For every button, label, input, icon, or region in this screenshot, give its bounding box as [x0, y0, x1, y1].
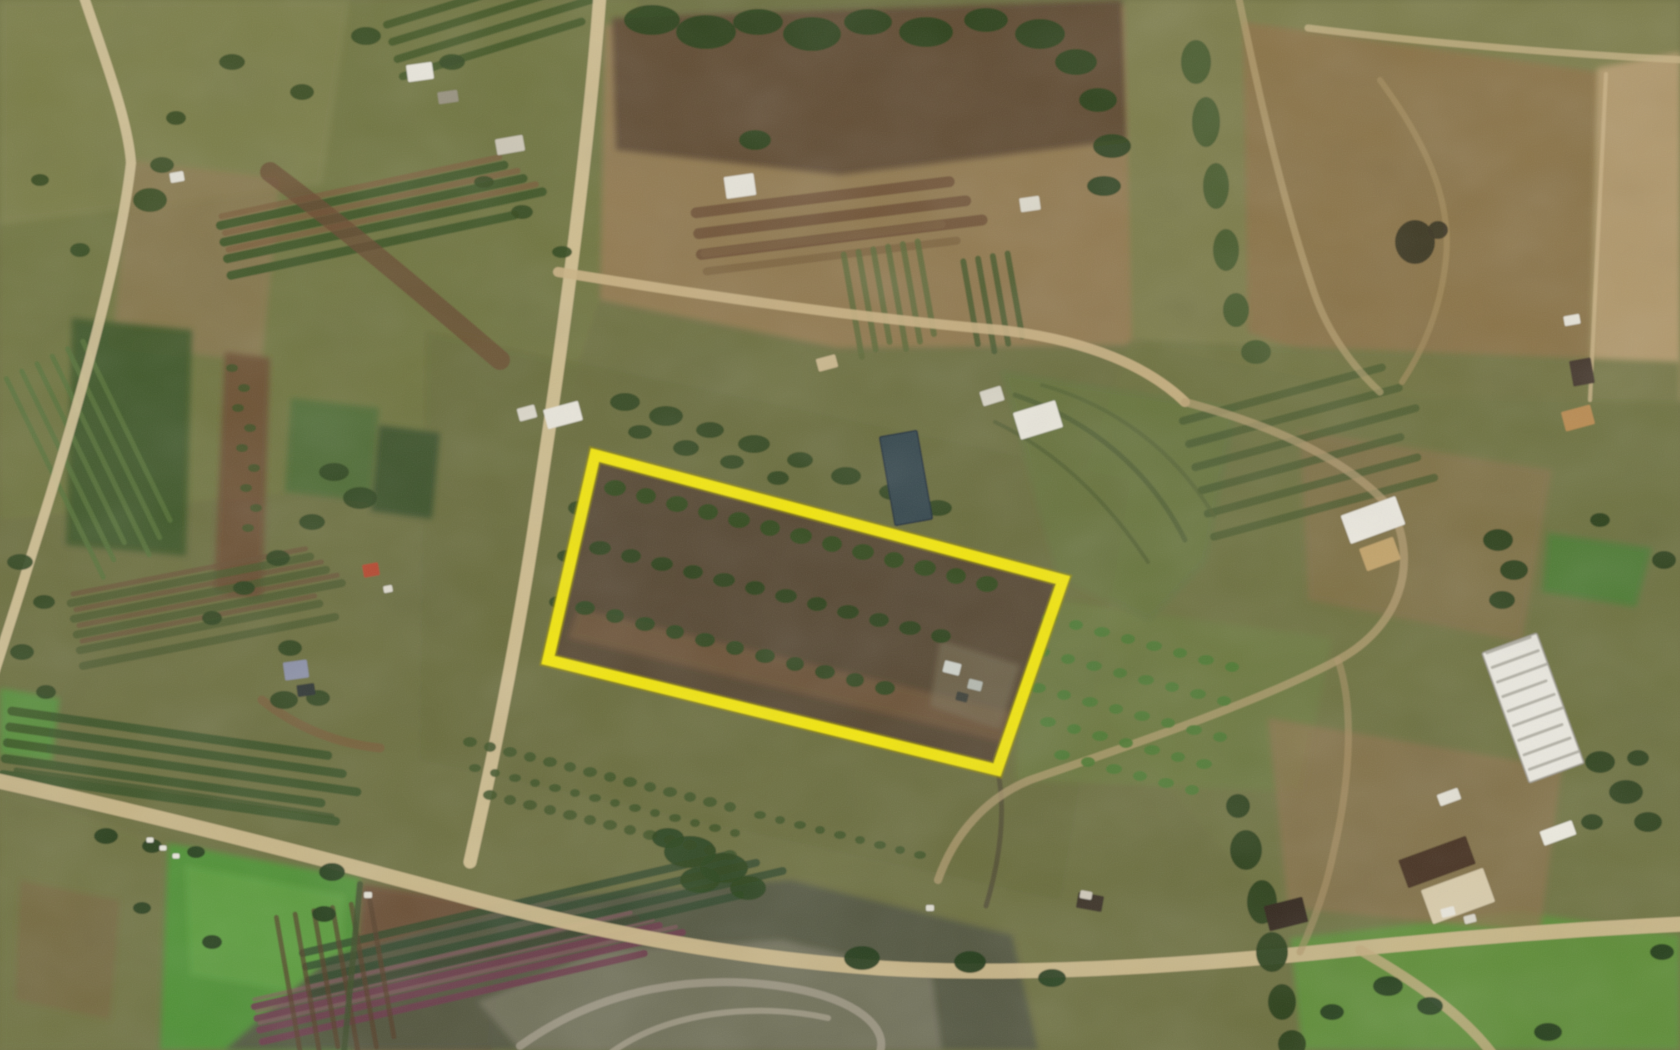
trees-bottom-scatter-blob — [1417, 997, 1443, 1015]
trees-leftmid-scatter-blob — [299, 514, 325, 530]
orchard-dots-below-parcel-blob — [855, 836, 865, 844]
trees-topleft-scatter-blob — [31, 174, 49, 186]
pond-scrub-field-blob — [1428, 221, 1448, 239]
trees-homestead-blob — [1652, 551, 1676, 569]
parcel-tree-row-2-blob — [775, 589, 797, 603]
bushfield-dots-right-blob — [1119, 738, 1133, 748]
white-dot-row-b — [160, 846, 167, 851]
orchard-dots-below-parcel-blob — [629, 804, 641, 812]
parcel-tree-row-1-blob — [884, 552, 904, 568]
trees-leftmid-scatter-blob — [266, 550, 290, 566]
orchard-dots-below-parcel-blob — [589, 794, 601, 802]
parcel-tree-row-3-blob — [635, 617, 655, 631]
orchard-dots-below-parcel-blob — [504, 795, 516, 805]
trees-top-edge-blob — [1087, 176, 1121, 196]
bushfield-dots-right-blob — [1054, 750, 1070, 760]
bush-mass-bottomcenter-blob — [730, 876, 766, 900]
parcel-tree-row-3-blob — [726, 641, 744, 655]
bushes-above-parcel-blob — [673, 440, 699, 456]
parcel-tree-row-2-blob — [869, 613, 889, 627]
trees-bottom-scatter-blob — [954, 951, 986, 973]
trees-bottom-scatter-blob — [1534, 1023, 1562, 1041]
orchard-dots-below-parcel-blob — [564, 762, 576, 772]
plot-darkgreen-mid — [371, 425, 440, 519]
orchard-dots-below-parcel-blob — [604, 772, 616, 782]
bushfield-dots-right-blob — [1086, 661, 1102, 671]
orchard-dots-below-parcel-blob — [684, 792, 696, 802]
trees-bottom-scatter-blob — [312, 906, 336, 922]
trees-topleft-scatter-blob — [166, 111, 186, 125]
white-spec-field-roof — [364, 892, 372, 898]
orchard-dots-below-parcel-blob — [623, 777, 637, 787]
trees-leftmid-scatter-blob — [319, 463, 349, 481]
parcel-tree-row-2-blob — [651, 557, 673, 571]
white-spec-field — [364, 892, 372, 898]
bushfield-dots-right-blob — [1138, 675, 1154, 685]
bushfield-dots-right-blob — [1185, 785, 1199, 795]
parcel-tree-row-2-blob — [931, 629, 951, 643]
orchard-dots-below-parcel-blob — [724, 802, 736, 812]
trees-leftmid-scatter-blob — [202, 611, 222, 625]
trees-bottom-scatter-blob — [1373, 976, 1403, 996]
trees-topleft-scatter-blob — [439, 54, 465, 70]
trees-topleft-scatter-blob — [552, 246, 572, 258]
white-shed-topcenter-roof — [724, 173, 757, 199]
orchard-dots-below-parcel-blob — [775, 816, 785, 824]
trees-homestead-blob — [1581, 814, 1603, 830]
trees-topright-column-blob — [1213, 229, 1239, 271]
orchard-dots-below-parcel-blob — [524, 752, 536, 762]
hedge-dots-brown-strip-blob — [238, 384, 250, 392]
bushfield-dots-right-blob — [1057, 690, 1071, 700]
plot-green-mid — [285, 398, 379, 502]
bushfield-dots-right-blob — [1144, 745, 1160, 755]
bushfield-dots-right-blob — [1171, 752, 1185, 762]
scene-layers — [0, 0, 1680, 1050]
orchard-dots-below-parcel-blob — [815, 826, 825, 834]
trees-topleft-scatter-blob — [474, 176, 494, 188]
bushfield-dots-right-blob — [1133, 771, 1147, 781]
blue-hut-annex-roof — [296, 683, 315, 697]
trees-bottom-scatter-blob — [1650, 944, 1674, 960]
white-dot-row-a-roof — [147, 838, 154, 843]
orchard-dots-below-parcel-blob — [703, 797, 717, 807]
orchard-dots-below-parcel-blob — [469, 764, 481, 772]
trees-bottom-scatter-blob — [202, 935, 222, 949]
trees-topleft-scatter-blob — [219, 54, 245, 70]
trees-leftmid-scatter-blob — [278, 640, 302, 656]
bushfield-dots-right-blob — [1225, 662, 1239, 672]
tree-column-bottomright-blob — [1256, 932, 1288, 972]
orchard-dots-below-parcel-blob — [463, 737, 477, 747]
bushfield-dots-right-blob — [1106, 764, 1122, 774]
bushfield-dots-right-blob — [1109, 704, 1123, 714]
orchard-dots-below-parcel-blob — [650, 809, 660, 817]
white-house-topleft — [406, 62, 434, 82]
orchard-dots-below-parcel-blob — [730, 829, 740, 837]
bushes-above-parcel-blob — [738, 435, 770, 453]
bushfield-dots-right-blob — [1213, 732, 1227, 742]
parcel-tree-row-3-blob — [666, 625, 684, 639]
parcel-tree-row-2-blob — [713, 573, 735, 587]
parcel-tree-row-3-blob — [575, 601, 595, 615]
bushes-above-parcel-blob — [831, 467, 861, 485]
orchard-dots-below-parcel-blob — [754, 811, 766, 819]
trees-bottom-scatter-blob — [1038, 969, 1066, 987]
trees-topright-column-blob — [1241, 340, 1271, 364]
hedge-dots-brown-strip-blob — [248, 464, 260, 472]
blue-hut — [283, 659, 309, 680]
orchard-dots-below-parcel-blob — [584, 815, 596, 825]
trees-bottom-scatter-blob — [133, 902, 151, 914]
red-roof-hut-roof — [362, 562, 380, 578]
trees-bottom-scatter-blob — [1320, 1004, 1344, 1020]
trees-leftmid-scatter-blob — [343, 487, 377, 509]
white-dot-bottom — [926, 905, 934, 911]
trees-top-edge-blob — [1055, 49, 1097, 75]
parcel-tree-row-2-blob — [745, 581, 765, 595]
orchard-dots-below-parcel-blob — [583, 767, 597, 777]
bushfield-dots-right-blob — [1067, 724, 1081, 734]
parcel-tree-row-1-blob — [636, 488, 656, 504]
orchard-dots-below-parcel-blob — [644, 782, 656, 792]
trees-top-edge-blob — [964, 8, 1008, 32]
parcel-tree-row-1-blob — [698, 504, 718, 520]
orchard-dots-below-parcel-blob — [543, 757, 557, 767]
bushes-above-parcel-blob — [649, 406, 683, 426]
orchard-dots-below-parcel-blob — [663, 787, 677, 797]
orchard-dots-below-parcel-blob — [490, 769, 500, 777]
tree-column-bottomright-blob — [1268, 984, 1296, 1020]
trees-bottom-scatter-blob — [844, 946, 880, 970]
parcel-tree-row-3-blob — [815, 665, 835, 679]
orchard-dots-below-parcel-blob — [610, 799, 620, 807]
mottle-left-reddish — [15, 880, 120, 1020]
trees-topleft-scatter-blob — [511, 205, 533, 219]
hedge-dots-brown-strip-blob — [242, 524, 254, 532]
trees-topleft-scatter-blob — [133, 188, 167, 212]
bushes-above-parcel-blob — [628, 425, 652, 439]
white-dot-row-c — [173, 854, 180, 859]
bushfield-dots-right-blob — [1146, 641, 1162, 651]
orchard-dots-below-parcel-blob — [669, 814, 681, 822]
trees-homestead-blob — [1634, 812, 1662, 832]
bushfield-dots-right-blob — [1040, 717, 1056, 727]
orchard-dots-below-parcel-blob — [509, 774, 521, 782]
parcel-tree-row-1-blob — [976, 576, 998, 592]
hedge-dots-brown-strip-blob — [226, 364, 238, 372]
trees-topright-column-blob — [1192, 97, 1220, 147]
trees-top-edge-blob — [1079, 88, 1117, 112]
white-dot-bottom-roof — [926, 905, 934, 911]
bush-mass-bottomcenter-blob — [680, 867, 720, 893]
dark-shed-topright — [1569, 357, 1595, 386]
bushfield-dots-right-blob — [1173, 648, 1187, 658]
parcel-tree-row-3-blob — [786, 657, 804, 671]
orchard-dots-below-parcel-blob — [563, 810, 577, 820]
white-spec-topcenter-roof — [1019, 196, 1041, 213]
parcel-tree-row-3-blob — [875, 681, 895, 695]
bushfield-dots-right-blob — [1198, 655, 1214, 665]
parcel-tree-row-1-blob — [914, 560, 936, 576]
bushfield-dots-right-blob — [1121, 634, 1135, 644]
white-spec-topcenter — [1019, 196, 1041, 213]
parcel-tree-row-1-blob — [760, 520, 780, 536]
parcel-tree-row-1-blob — [666, 496, 688, 512]
trees-top-edge-blob — [739, 130, 771, 150]
parcel-tree-row-2-blob — [899, 621, 921, 635]
trees-top-edge-blob — [624, 5, 680, 35]
parcel-tree-row-3-blob — [755, 649, 775, 663]
trees-homestead-blob — [1627, 750, 1649, 766]
white-dot-row-c-roof — [173, 854, 180, 859]
orchard-dots-below-parcel-blob — [709, 824, 721, 832]
trees-topleft-scatter-blob — [351, 27, 381, 45]
white-shed-topcenter — [724, 173, 757, 199]
bushes-above-parcel-blob — [767, 471, 789, 485]
trees-top-edge-blob — [783, 17, 841, 51]
orchard-dots-below-parcel-blob — [549, 784, 561, 792]
orchard-dots-below-parcel-blob — [895, 846, 905, 854]
parcel-tree-row-1-blob — [728, 512, 750, 528]
tree-column-bottomright-blob — [1230, 830, 1262, 870]
orchard-dots-below-parcel-blob — [483, 790, 497, 800]
bushfield-dots-right-blob — [1165, 682, 1179, 692]
blue-hut-annex — [296, 683, 315, 697]
bushfield-dots-right-blob — [1161, 718, 1175, 728]
trees-homestead-blob — [1585, 751, 1615, 773]
white-dot-row-a — [147, 838, 154, 843]
bushes-above-parcel-blob — [720, 455, 744, 469]
orchard-dots-below-parcel-blob — [794, 821, 806, 829]
bushfield-dots-right-blob — [1094, 627, 1110, 637]
parcel-tree-row-1-blob — [946, 568, 966, 584]
bushfield-dots-right-blob — [1190, 689, 1206, 699]
trees-top-edge-blob — [844, 9, 892, 35]
parcel-tree-row-2-blob — [837, 605, 859, 619]
parcel-tree-row-3-blob — [846, 673, 864, 687]
orchard-dots-below-parcel-blob — [544, 805, 556, 815]
parcel-tree-row-2-blob — [621, 549, 641, 563]
trees-homestead-blob — [1609, 780, 1643, 804]
orchard-dots-below-parcel-blob — [503, 747, 517, 757]
bushfield-dots-right-blob — [1061, 654, 1075, 664]
hedge-dots-brown-strip-blob — [236, 444, 248, 452]
trees-topright-column-blob — [1223, 293, 1249, 327]
trees-leftmid-scatter-blob — [7, 554, 33, 570]
satellite-image-viewport: Aerial satellite photograph of cultivate… — [0, 0, 1680, 1050]
orchard-dots-below-parcel-blob — [603, 820, 617, 830]
orchard-dots-below-parcel-blob — [690, 819, 700, 827]
hedge-dots-brown-strip-blob — [244, 424, 256, 432]
orchard-dots-below-parcel-blob — [570, 789, 580, 797]
parcel-tree-row-1-blob — [822, 536, 842, 552]
trees-leftmid-scatter-blob — [233, 581, 255, 595]
parcel-tree-row-2-blob — [807, 597, 827, 611]
trees-leftmid-scatter-blob — [33, 595, 55, 609]
parcel-tree-row-1-blob — [852, 544, 874, 560]
trees-top-edge-blob — [676, 15, 736, 49]
bushes-above-parcel-blob — [610, 393, 640, 411]
aerial-photo — [0, 0, 1680, 1050]
trees-bottom-scatter-blob — [187, 846, 205, 858]
trees-topleft-scatter-blob — [150, 157, 174, 173]
trees-top-edge-blob — [899, 17, 953, 47]
blue-hut-roof — [283, 659, 309, 680]
bushfield-dots-right-blob — [1158, 778, 1174, 788]
white-house-topleft-roof — [406, 62, 434, 82]
bushfield-dots-right-blob — [1081, 757, 1095, 767]
parcel-tree-row-1-blob — [604, 480, 626, 496]
trees-topright-column-blob — [1181, 40, 1211, 84]
white-dot-row-b-roof — [160, 846, 167, 851]
trees-leftmid-scatter-blob — [270, 691, 298, 709]
trees-bottom-scatter-blob — [319, 863, 345, 881]
trees-topleft-scatter-blob — [70, 243, 90, 257]
trees-top-edge-blob — [1093, 134, 1131, 158]
trees-topleft-scatter-blob — [290, 84, 314, 100]
bushfield-dots-right-blob — [1069, 620, 1083, 630]
hedge-dots-brown-strip-blob — [250, 504, 262, 512]
orchard-dots-below-parcel-blob — [484, 742, 496, 752]
orchard-dots-below-parcel-blob — [523, 800, 537, 810]
red-roof-hut — [362, 562, 380, 578]
bushes-above-parcel-blob — [696, 422, 724, 438]
parcel-tree-row-3-blob — [695, 633, 715, 647]
trees-homestead-blob — [1483, 529, 1513, 551]
bushfield-dots-right-blob — [1186, 725, 1202, 735]
orchard-dots-below-parcel-blob — [530, 779, 540, 787]
bushfield-dots-right-blob — [1196, 759, 1212, 769]
trees-homestead-blob — [1500, 560, 1528, 580]
bush-mass-bottomcenter-blob — [652, 828, 684, 848]
trees-leftmid-scatter-blob — [10, 644, 34, 660]
parcel-tree-row-3-blob — [606, 609, 624, 623]
tree-column-bottomright-blob — [1226, 794, 1250, 818]
orchard-dots-below-parcel-blob — [834, 831, 846, 839]
hedge-dots-brown-strip-blob — [232, 404, 244, 412]
orchard-dots-below-parcel-blob — [624, 825, 636, 835]
bushfield-dots-right-blob — [1113, 668, 1127, 678]
trees-homestead-blob — [1489, 591, 1515, 609]
parcel-tree-row-2-blob — [589, 541, 611, 555]
orchard-dots-below-parcel-blob — [914, 851, 926, 859]
hedge-dots-brown-strip-blob — [240, 484, 252, 492]
orchard-dots-below-parcel-blob — [874, 841, 886, 849]
trees-homestead-blob — [1590, 513, 1610, 527]
bushfield-dots-right-blob — [1092, 731, 1108, 741]
bushfield-dots-right-blob — [1082, 697, 1098, 707]
trees-top-edge-blob — [1015, 19, 1065, 49]
dark-shed-topright-roof — [1569, 357, 1595, 386]
bushfield-dots-right-blob — [1134, 711, 1150, 721]
trees-leftmid-scatter-blob — [36, 685, 56, 699]
bushes-above-parcel-blob — [787, 452, 813, 468]
parcel-tree-row-1-blob — [790, 528, 812, 544]
bushfield-dots-right-blob — [1217, 696, 1231, 706]
trees-topright-column-blob — [1203, 163, 1229, 209]
trees-bottom-scatter-blob — [94, 828, 118, 844]
parcel-tree-row-2-blob — [683, 565, 703, 579]
trees-top-edge-blob — [733, 9, 783, 35]
